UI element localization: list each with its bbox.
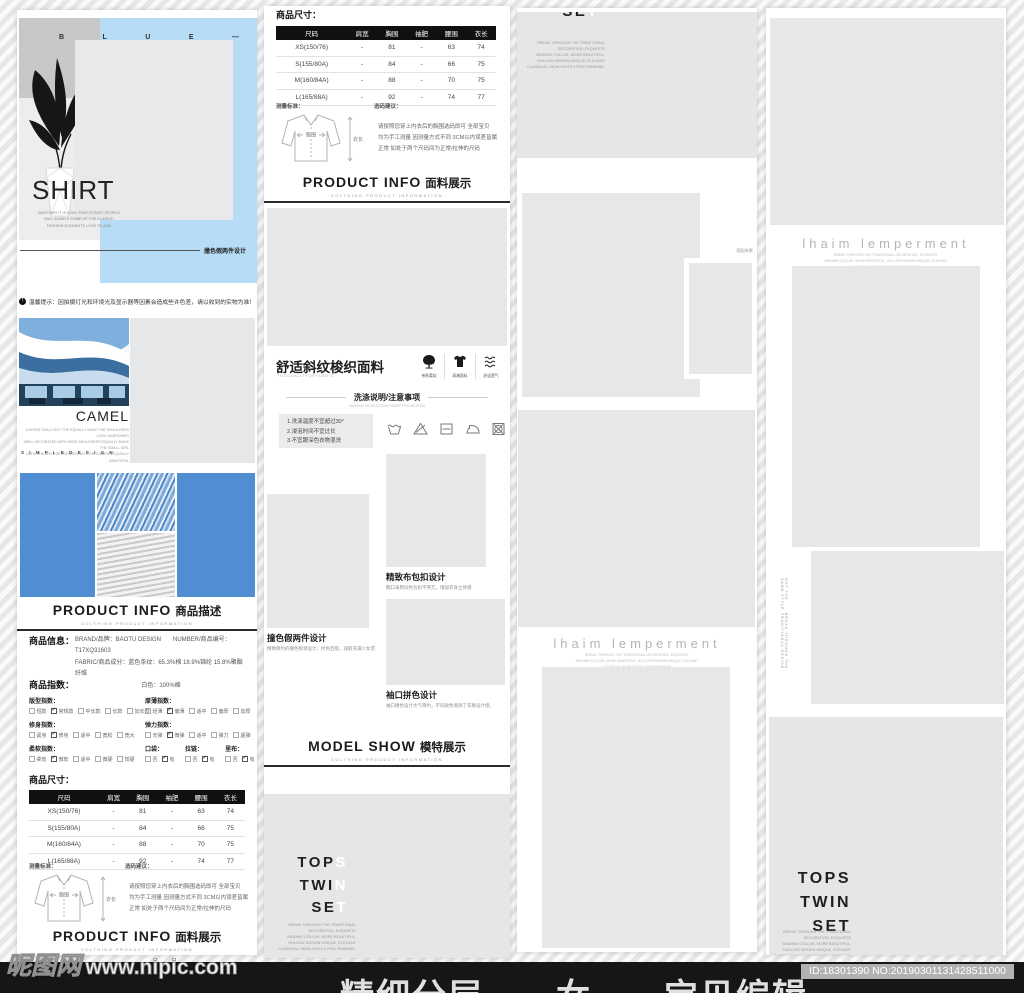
watermark-logo: 昵图网	[6, 952, 81, 980]
advice-line: 正常 如处于两个尺码间为正常/拉伸的尺码	[129, 904, 249, 915]
washing-rule: 1.洗涤温度不宜超过30°	[287, 418, 373, 428]
checkbox-icon	[78, 708, 84, 714]
section-header-description: PRODUCT INFO商品描述 COLTHING PRODUCT INFORM…	[17, 602, 257, 631]
index-group-slim: 修身指数： 紧身修身适中宽松宽大	[29, 720, 139, 739]
size-table-header: 腰围	[437, 26, 467, 40]
checkbox-icon	[51, 732, 57, 738]
site-watermark: 昵图网 www.nipic.com	[6, 946, 238, 982]
detail-photo-cuff	[386, 599, 505, 685]
tops-small-line: CLASSICAL HIGHLIGHTS A FEW FEMININE.	[278, 946, 356, 952]
advice-text: 请按照您穿上内衣后的胸围选码即可 全部宝贝均为手工测量 因测量方式不同 3CM以…	[378, 122, 502, 155]
vertical-caption-line: NOT THE SAME STYLE	[780, 578, 788, 613]
checkbox-option: 加厚	[233, 708, 251, 715]
hero-title: SHIRT	[32, 175, 115, 206]
detail-desc: 袖口撞色设计大气简约，不同颜色增添了衣服设计感。	[386, 703, 504, 709]
checkbox-option: 偏厚	[211, 708, 229, 715]
size-cell: -	[157, 820, 186, 837]
size-cell: 66	[437, 56, 467, 73]
size-table-header: 尺码	[276, 26, 347, 40]
checkbox-icon	[29, 756, 35, 762]
checkbox-icon	[145, 756, 151, 762]
tops-line-fragment: SET	[543, 12, 599, 24]
index-label: 商品指数：	[29, 678, 74, 691]
group-name: 厚薄指数：	[145, 696, 255, 705]
size-cell: 88	[128, 837, 157, 854]
fabric-texture-photo	[97, 473, 175, 531]
size-label: 商品尺寸：	[276, 8, 321, 21]
iron-icon	[464, 420, 481, 442]
hero-tagline: 撞色假两件设计	[204, 246, 246, 255]
tops-small-text: BREAK THROUGH THE TRADITIONALDECORATION,…	[773, 929, 851, 955]
camel-desc: A WORD SHALL NOT THE EQUALLY MAKE THE SH…	[19, 427, 129, 464]
size-cell: 74	[466, 40, 496, 56]
hero-divider	[20, 250, 200, 251]
checkbox-icon	[162, 756, 168, 762]
checkbox-icon	[29, 732, 35, 738]
washing-row: 1.洗涤温度不宜超过30°2.浸泡时间不宜过长3.不宜跟深色衣物混洗	[264, 412, 510, 454]
diagram-chest-label: 胸围	[59, 892, 69, 899]
size-table-header: 衣长	[466, 26, 496, 40]
alert-dot-icon: !	[19, 298, 26, 305]
diagram-length-label: 衣长	[106, 896, 116, 903]
feature-quality: 高端面料	[445, 354, 476, 379]
page: BLUE— SHIRT WHETHER IT IS A BIG STAR STR…	[0, 0, 1024, 993]
header-line-right	[428, 397, 488, 398]
advice-label: 选码建议：	[125, 862, 153, 870]
checkbox-option: 无弹	[145, 732, 163, 739]
checkbox-icon	[51, 756, 57, 762]
washing-header: 洗涤说明/注意事项 WASHING INSTRUCTIONS FABRIC PR…	[264, 392, 510, 408]
checkbox-icon	[167, 708, 173, 714]
section-divider	[264, 201, 510, 203]
model-photo-wide	[518, 410, 755, 627]
tops-line: TOPS	[282, 852, 348, 875]
checkbox-option: 有	[162, 756, 175, 763]
group-name: 修身指数：	[29, 720, 139, 729]
size-cell: XS(150/76)	[29, 804, 99, 820]
match-tag: 搭配效果	[705, 248, 753, 254]
checkbox-icon	[189, 708, 195, 714]
size-cell: -	[347, 73, 377, 90]
size-cell: 75	[466, 56, 496, 73]
interior-photo	[19, 318, 129, 406]
size-cell: -	[99, 837, 128, 854]
checkbox-option: 微硬	[95, 756, 113, 763]
checkbox-icon	[117, 756, 123, 762]
fabric-subtitle: T H E Q U A L I T Y O F F A B R I C	[277, 374, 333, 378]
checkbox-option: 弹力	[211, 732, 229, 739]
hero-subtitle: WHETHER IT IS A BIG STAR STREET PEOPLEWI…	[37, 210, 121, 229]
measure-block: 测量标准： 胸围 衣长	[17, 862, 257, 928]
section-subtitle: COLTHING PRODUCT INFORMATION	[264, 193, 510, 198]
size-cell: M(160/84A)	[276, 73, 347, 90]
brand-letter: L	[103, 34, 107, 41]
tops-line: TOPS	[781, 867, 851, 891]
section-title-cn: 面料展示	[425, 178, 471, 190]
footer-big-text: 精细分层——女——宝贝编辑	[340, 969, 808, 993]
section-title-cn: 商品描述	[175, 606, 221, 618]
lhaim-title: lhaim lemperment	[766, 236, 1006, 251]
detail-caption: 精致布包扣设计	[386, 571, 446, 583]
detail-caption: 撞色假两件设计	[267, 632, 327, 644]
group-name: 弹力指数：	[145, 720, 255, 729]
notice-bar: ! 温馨提示：因拍摄灯光和环境光及显示器等因素会造成些许色差，请以收到的实物为准…	[17, 294, 257, 308]
size-cell: 81	[128, 804, 157, 820]
feature-label: 亲肤柔软	[414, 374, 444, 379]
no-bleach-icon	[412, 420, 429, 442]
index-group-pocket: 口袋： 否有	[145, 744, 179, 763]
tops-small-text: BREAK THROUGH THE TRADITIONALDECORATION,…	[278, 922, 356, 952]
tshirt-icon	[453, 356, 467, 373]
checkbox-option: 适中	[73, 732, 91, 739]
index-group-thickness: 厚薄指数： 轻薄偏薄适中偏厚加厚	[145, 696, 255, 715]
size-cell: 84	[128, 820, 157, 837]
section-title-en: PRODUCT INFO	[53, 602, 172, 618]
size-cell: -	[407, 40, 437, 56]
product-index-block: 商品指数： 版型指数： 短款常规款中长款长款加长款 厚薄指数： 轻薄偏薄适中偏厚…	[17, 678, 257, 772]
section-subtitle: COLTHING PRODUCT INFORMATION	[17, 621, 257, 626]
index-group-lining: 里布： 否有	[225, 744, 257, 763]
checkbox-icon	[95, 756, 101, 762]
size-cell: 63	[187, 804, 216, 820]
vertical-caption: NOT THE SAME STYLEBREAK THROUGH THE TRAD…	[778, 578, 788, 682]
washing-rule: 2.浸泡时间不宜过长	[287, 428, 373, 438]
detail-desc: 胸口采用同色包扣不突兀，增加衣身立体感	[386, 585, 504, 591]
checkbox-option: 否	[185, 756, 198, 763]
section-divider	[17, 629, 257, 631]
checkbox-icon	[95, 732, 101, 738]
size-table-row: S(155/80A)-84-6675	[276, 56, 496, 73]
size-cell: -	[407, 56, 437, 73]
hand-wash-icon	[386, 420, 403, 442]
brand-letter: U	[145, 34, 150, 41]
shirt-diagram: 胸围 衣长	[27, 869, 117, 932]
size-table-header: 袖肥	[157, 790, 186, 804]
feature-label: 舒适透气	[476, 374, 506, 379]
svg-text:衣长: 衣长	[353, 136, 363, 143]
no-tumble-dry-icon	[490, 420, 507, 442]
checkbox-option: 常规款	[51, 708, 74, 715]
size-cell: -	[99, 804, 128, 820]
blue-block-left	[20, 473, 95, 597]
checkbox-icon	[145, 708, 151, 714]
size-cell: -	[407, 73, 437, 90]
brand-letter: B	[59, 34, 64, 41]
hero-subtitle-line: WILL ALWAYS SOME OF THE CLASSIC	[37, 216, 121, 222]
size-table-row: M(160/84A)-88-7075	[276, 73, 496, 90]
detail-page-column-1: BLUE— SHIRT WHETHER IT IS A BIG STAR STR…	[17, 10, 257, 955]
sofa-photo	[97, 533, 175, 597]
tops-twin-set-end-block: TOPS TWIN SET BREAK THROUGH THE TRADITIO…	[769, 717, 1003, 955]
size-table: 尺码肩宽胸围袖肥腰围衣长 XS(150/76)-81-6374 S(155/80…	[276, 26, 496, 106]
tops-line: TWIN	[781, 891, 851, 915]
checkbox-icon	[145, 732, 151, 738]
checkbox-icon	[233, 708, 239, 714]
detail-page-column-2: 商品尺寸： 尺码肩宽胸围袖肥腰围衣长 XS(150/76)-81-6374 S(…	[264, 6, 510, 958]
waves-icon	[484, 356, 498, 373]
size-table: 尺码肩宽胸围袖肥腰围衣长 XS(150/76)-81-6374 S(155/80…	[29, 790, 245, 870]
washing-rules-box: 1.洗涤温度不宜超过30°2.浸泡时间不宜过长3.不宜跟深色衣物混洗	[279, 414, 373, 448]
size-table-row: M(160/84A)-88-7075	[29, 837, 245, 854]
checkbox-option: 短款	[29, 708, 47, 715]
checkbox-option: 有	[242, 756, 255, 763]
size-cell: 88	[377, 73, 407, 90]
tops-twin-set-block: TOPS TWIN SET BREAK THROUGH THE TRADITIO…	[264, 794, 510, 958]
feature-soft: 亲肤柔软	[414, 354, 445, 379]
brand-letter: —	[232, 34, 239, 41]
checkbox-icon	[185, 756, 191, 762]
feature-breathable: 舒适透气	[476, 354, 506, 379]
checkbox-option: 适中	[189, 708, 207, 715]
index-group-stretch: 弹力指数： 无弹微弹适中弹力超弹	[145, 720, 255, 739]
checkbox-icon	[202, 756, 208, 762]
advice-line: 请按照您穿上内衣后的胸围选码即可 全部宝贝	[378, 122, 502, 133]
product-info-block: 商品信息： BRAND/品牌：BAOTU DESIGN NUMBER/商品编号：…	[17, 632, 257, 678]
svg-text:胸围: 胸围	[306, 132, 316, 139]
checkbox-icon	[73, 756, 79, 762]
size-table-row: S(155/80A)-84-6675	[29, 820, 245, 837]
checkbox-option: 中长款	[78, 708, 101, 715]
size-table-header: 衣长	[216, 790, 245, 804]
checkbox-option: 超弹	[233, 732, 251, 739]
checkbox-icon	[189, 732, 195, 738]
size-cell: XS(150/76)	[276, 40, 347, 56]
size-table-header: 腰围	[187, 790, 216, 804]
watermark-url: www.nipic.com	[85, 956, 237, 979]
detail-caption: 袖口拼色设计	[386, 689, 437, 701]
size-table-header: 胸围	[128, 790, 157, 804]
detail-photo-buttons	[386, 454, 486, 567]
group-name: 里布：	[225, 744, 257, 753]
checkbox-option: 有	[202, 756, 215, 763]
index-group-zipper: 拉链： 否有	[185, 744, 219, 763]
shirt-diagram: 胸围 衣长	[274, 109, 364, 172]
advice-line: 均为手工测量 因测量方式不同 3CM以内误差皆属	[378, 133, 502, 144]
tops-small-text: BREAK THROUGH THE TRADITIONALDECORATION,…	[527, 40, 605, 70]
checkbox-option: 柔软	[29, 756, 47, 763]
model-photo-large	[522, 193, 700, 397]
detail-photo-contrast-collar	[267, 494, 369, 628]
tops-line: TWIN	[282, 875, 348, 898]
fabric-photo-placeholder	[267, 208, 507, 346]
size-cell: 63	[437, 40, 467, 56]
measure-block: 测量标准： 胸围 衣长 选码建议：	[264, 102, 510, 168]
checkbox-option: 宽大	[117, 732, 135, 739]
blue-block-right	[177, 473, 255, 597]
section-divider	[264, 765, 510, 767]
advice-line: 请按照您穿上内衣后的胸围选码即可 全部宝贝	[129, 882, 249, 893]
checkbox-option: 较硬	[117, 756, 135, 763]
washing-subtitle: WASHING INSTRUCTIONS FABRIC PRECAUTIONS	[264, 404, 510, 408]
header-line-left	[286, 397, 346, 398]
checkbox-option: 微软	[51, 756, 69, 763]
checkbox-icon	[167, 732, 173, 738]
checkbox-icon	[117, 732, 123, 738]
group-name: 版型指数：	[29, 696, 154, 705]
size-cell: 75	[216, 837, 245, 854]
size-cell: 70	[187, 837, 216, 854]
advice-line: 均为手工测量 因测量方式不同 3CM以内误差皆属	[129, 893, 249, 904]
vertical-caption-line: BREAK THROUGH THE TRADITIONAL DESIGN	[780, 613, 788, 682]
checkbox-option: 否	[225, 756, 238, 763]
section-header-model: MODEL SHOW模特展示 COLTHING PRODUCT INFORMAT…	[264, 738, 510, 767]
size-cell: 75	[216, 820, 245, 837]
checkbox-option: 适中	[189, 732, 207, 739]
size-cell: -	[347, 40, 377, 56]
size-cell: S(155/80A)	[29, 820, 99, 837]
model-photo-middle	[792, 266, 980, 547]
size-cell: 84	[377, 56, 407, 73]
size-cell: 66	[187, 820, 216, 837]
size-cell: 81	[377, 40, 407, 56]
camel-title: CAMEL	[19, 408, 129, 424]
info-line-brand: BRAND/品牌：BAOTU DESIGN NUMBER/商品编号：T17XQ3…	[75, 635, 247, 658]
dry-flat-icon	[438, 420, 455, 442]
size-cell: -	[99, 820, 128, 837]
index-group-fit: 版型指数： 短款常规款中长款长款加长款	[29, 696, 154, 715]
size-table-row: XS(150/76)-81-6374	[29, 804, 245, 820]
model-photo-top	[770, 18, 1004, 225]
tops-small-line: CLASSICAL HIGHLIGHTS A FEW FEMININE.	[527, 64, 605, 70]
tops-block-continued: SET BREAK THROUGH THE TRADITIONALDECORAT…	[517, 12, 757, 158]
checkbox-option: 微弹	[167, 732, 185, 739]
section-title-en: PRODUCT INFO	[303, 174, 422, 190]
image-id-badge: ID:18301390 NO:20190301131428511000	[801, 964, 1014, 979]
tops-small-line: CLASSICAL HIGHLIGHTS A FEW FEMININE.	[773, 953, 851, 955]
lhaim-title: lhaim lemperment	[517, 636, 757, 651]
tree-icon	[422, 356, 436, 373]
checkbox-icon	[211, 732, 217, 738]
index-group-softness: 柔软指数： 柔软微软适中微硬较硬	[29, 744, 139, 763]
hero-section: BLUE— SHIRT WHETHER IT IS A BIG STAR STR…	[17, 10, 257, 288]
fabric-title-row: 舒适斜纹梭织面料 T H E Q U A L I T Y O F F A B R…	[264, 352, 510, 390]
detail-photo-side	[811, 551, 1004, 704]
checkbox-option: 修身	[51, 732, 69, 739]
group-name: 柔软指数：	[29, 744, 139, 753]
camel-section: CAMEL A WORD SHALL NOT THE EQUALLY MAKE …	[17, 308, 257, 465]
hero-brand-letters: BLUE—	[59, 34, 239, 41]
detail-page-column-4: lhaim lemperment BREAK THROUGH THE TRADI…	[766, 8, 1006, 955]
brand-letter: E	[189, 34, 194, 41]
size-table-header: 肩宽	[99, 790, 128, 804]
section-header-fabric: PRODUCT INFO面料展示 COLTHING PRODUCT INFORM…	[264, 174, 510, 203]
checkbox-option: 轻薄	[145, 708, 163, 715]
section-title-en: PRODUCT INFO	[53, 928, 172, 944]
checkbox-icon	[211, 708, 217, 714]
checkbox-icon	[51, 708, 57, 714]
hero-subtitle-line: FASHION ELEMENTS LOVE TO ADD	[37, 223, 121, 229]
gallery-strip	[17, 465, 257, 600]
fabric-title: 舒适斜纹梭织面料	[276, 356, 384, 376]
checkbox-icon	[127, 708, 133, 714]
checkbox-icon	[242, 756, 248, 762]
size-label: 商品尺寸：	[29, 773, 74, 786]
checkbox-option: 长款	[105, 708, 123, 715]
size-table-header: 胸围	[377, 26, 407, 40]
size-cell: -	[157, 804, 186, 820]
group-name: 拉链：	[185, 744, 219, 753]
match-photo-small	[684, 258, 757, 379]
section-subtitle: COLTHING PRODUCT INFORMATION	[264, 757, 510, 762]
size-cell: -	[347, 56, 377, 73]
section-title-cn: 面料展示	[175, 932, 221, 944]
size-table-row: XS(150/76)-81-6374	[276, 40, 496, 56]
size-cell: M(160/84A)	[29, 837, 99, 854]
checkbox-icon	[73, 732, 79, 738]
washing-title: 洗涤说明/注意事项	[354, 392, 420, 403]
detail-page-column-3: SET BREAK THROUGH THE TRADITIONALDECORAT…	[517, 8, 757, 952]
size-cell: S(155/80A)	[276, 56, 347, 73]
camel-desc-line: A WORD SHALL NOT THE EQUALLY MAKE THE SH…	[19, 427, 129, 439]
model-photo-tall	[542, 667, 730, 948]
size-cell: 75	[466, 73, 496, 90]
checkbox-option: 适中	[73, 756, 91, 763]
section-title-cn: 模特展示	[420, 742, 466, 754]
advice-line: 正常 如处于两个尺码间为正常/拉伸的尺码	[378, 144, 502, 155]
checkbox-option: 宽松	[95, 732, 113, 739]
checkbox-option: 否	[145, 756, 158, 763]
section-title-en: MODEL SHOW	[308, 738, 416, 754]
group-name: 口袋：	[145, 744, 179, 753]
size-table-header: 袖肥	[407, 26, 437, 40]
size-table-header: 尺码	[29, 790, 99, 804]
info-label: 商品信息：	[29, 634, 74, 647]
checkbox-icon	[105, 708, 111, 714]
camel-spaced-caption: S I M P L E D E S I G N	[21, 450, 131, 455]
checkbox-icon	[225, 756, 231, 762]
size-cell: -	[157, 837, 186, 854]
image-placeholder	[130, 318, 255, 463]
feature-label: 高端面料	[445, 374, 475, 379]
checkbox-icon	[233, 732, 239, 738]
tops-line: SET	[282, 897, 348, 920]
checkbox-option: 偏薄	[167, 708, 185, 715]
size-cell: 74	[216, 804, 245, 820]
size-table-header: 肩宽	[347, 26, 377, 40]
notice-text: 温馨提示：因拍摄灯光和环境光及显示器等因素会造成些许色差，请以收到的实物为准！	[29, 297, 255, 306]
advice-text: 请按照您穿上内衣后的胸围选码即可 全部宝贝均为手工测量 因测量方式不同 3CM以…	[129, 882, 249, 915]
checkbox-option: 紧身	[29, 732, 47, 739]
advice-label: 选码建议：	[374, 102, 402, 110]
detail-desc: 精致简约的撞色假领设计，时尚百搭，减龄充满少女范	[267, 646, 382, 652]
size-cell: 70	[437, 73, 467, 90]
checkbox-icon	[29, 708, 35, 714]
washing-rule: 3.不宜跟深色衣物混洗	[287, 437, 373, 447]
